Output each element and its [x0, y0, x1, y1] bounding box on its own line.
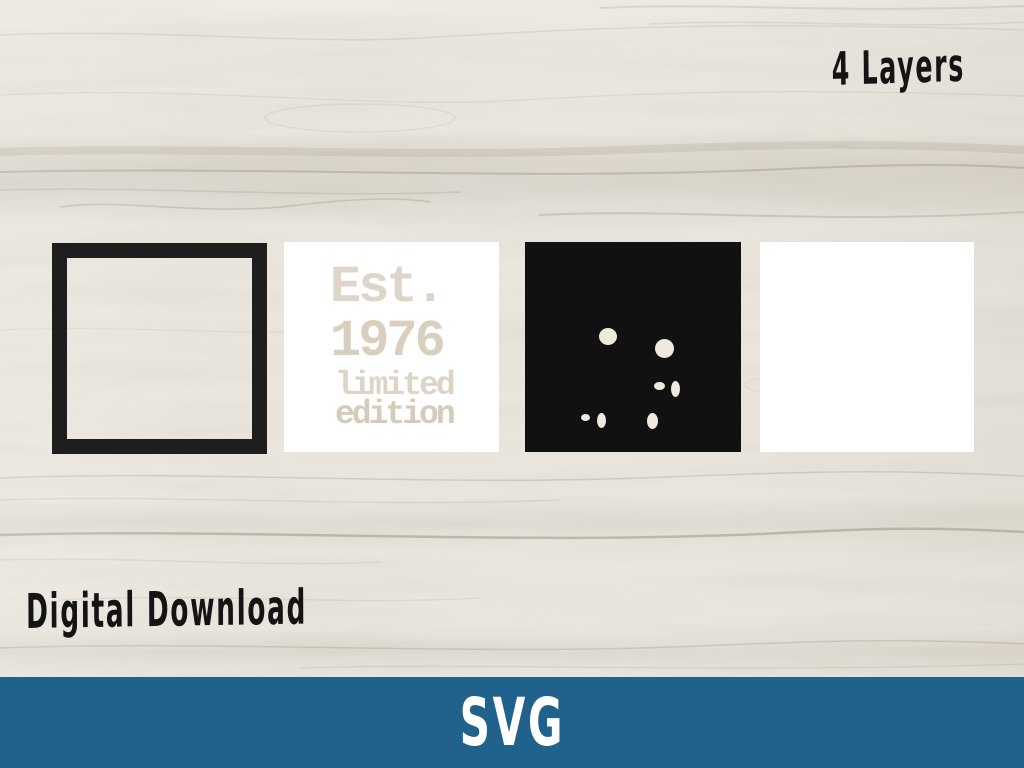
layers-count-label: 4 Layers — [832, 38, 959, 96]
cutout-dot — [647, 413, 658, 429]
cutout-dot — [655, 339, 674, 358]
layer-2-stencil-square: Est. 1976 limited edition — [284, 242, 499, 452]
cutout-dot — [654, 382, 665, 390]
stencil-line-edition: edition — [335, 398, 453, 431]
cutout-dot — [599, 328, 617, 345]
format-banner: SVG — [0, 677, 1024, 768]
digital-download-label: Digital Download — [26, 580, 307, 640]
product-mockup-image: 4 Layers Est. 1976 limited edition Digit… — [0, 0, 1024, 768]
cutout-dot — [597, 413, 606, 428]
cutout-dot — [671, 381, 680, 397]
stencil-line-year: 1976 — [330, 316, 443, 368]
layer-1-frame-square — [52, 243, 267, 454]
layer-4-base-square — [760, 242, 974, 452]
stencil-line-est: Est. — [330, 262, 443, 314]
cutout-dot — [581, 414, 590, 421]
layer-3-counters-square — [525, 242, 741, 452]
svg-format-label: SVG — [459, 684, 564, 761]
